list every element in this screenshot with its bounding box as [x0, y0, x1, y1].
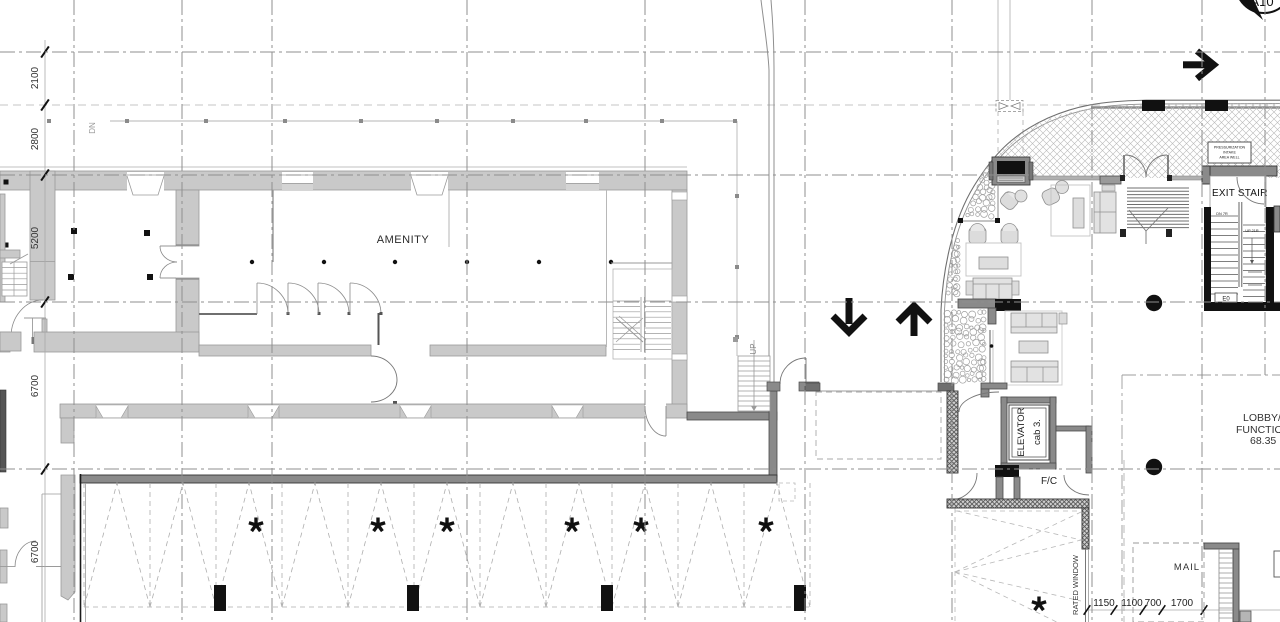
svg-text:MAIL: MAIL	[1174, 562, 1200, 573]
svg-text:1100: 1100	[1121, 598, 1143, 609]
svg-text:F/C: F/C	[1041, 476, 1057, 487]
svg-text:RATED WINDOW: RATED WINDOW	[1071, 554, 1080, 615]
svg-text:1700: 1700	[1171, 598, 1194, 609]
svg-text:2800: 2800	[30, 127, 41, 150]
svg-text:DN 7R: DN 7R	[1216, 212, 1228, 216]
svg-text:UP: UP	[749, 343, 758, 354]
svg-text:AMENITY: AMENITY	[377, 234, 430, 246]
svg-text:DN: DN	[88, 122, 97, 134]
svg-text:68.35: 68.35	[1250, 435, 1276, 447]
svg-text:INTAKE: INTAKE	[1223, 151, 1236, 155]
svg-text:PRESSURIZATION: PRESSURIZATION	[1214, 146, 1246, 150]
svg-text:UP 21R: UP 21R	[1245, 229, 1258, 233]
svg-text:6700: 6700	[30, 540, 41, 563]
svg-text:cab 3.: cab 3.	[1032, 419, 1043, 445]
svg-text:2100: 2100	[30, 66, 41, 89]
svg-text:700: 700	[1145, 598, 1162, 609]
svg-text:6700: 6700	[30, 374, 41, 397]
svg-text:AREA WELL: AREA WELL	[1219, 156, 1239, 160]
svg-text:LOBBY/: LOBBY/	[1243, 412, 1280, 424]
svg-text:ELEVATOR: ELEVATOR	[1016, 407, 1027, 456]
svg-text:1150: 1150	[1093, 598, 1115, 609]
svg-text:5200: 5200	[30, 226, 41, 249]
